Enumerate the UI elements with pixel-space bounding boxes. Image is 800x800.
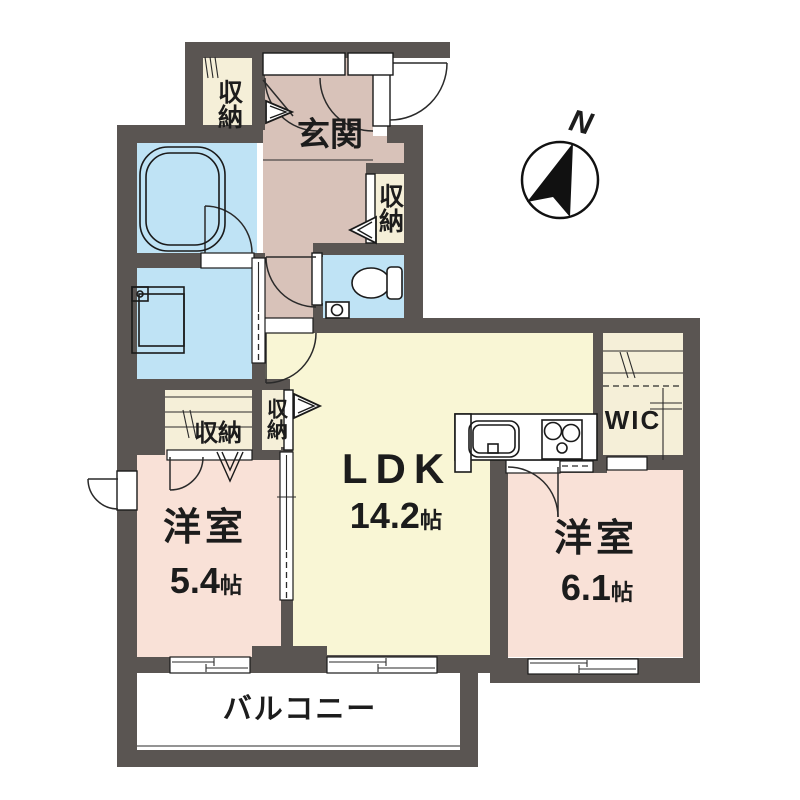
storage-bedroom-label: 収納 — [194, 422, 242, 446]
bedroom-right-window — [528, 659, 638, 674]
ldk-area-label: 14.2帖 — [350, 498, 442, 534]
bedroom-left-area-unit: 帖 — [220, 573, 242, 598]
bedroom-left-area-value: 5.4 — [170, 560, 220, 601]
toilet-door-frame — [312, 253, 322, 305]
bathroom-door-opening — [201, 253, 254, 268]
bedroom-left-floor — [137, 450, 283, 657]
ldk-label: LDK — [342, 448, 452, 490]
bedroom-right-door-opening — [506, 460, 560, 473]
bedroom-left-area-label: 5.4帖 — [170, 563, 242, 599]
bedroom-right-area-unit: 帖 — [611, 580, 633, 605]
genkan-label: 玄関 — [297, 118, 363, 151]
bathroom-floor — [137, 143, 257, 253]
wic-opening — [607, 457, 647, 470]
shoe-cabinet-2 — [348, 53, 393, 75]
compass-icon — [522, 142, 598, 218]
floorplan-drawing — [0, 0, 800, 800]
storage-ldk-label: 収納 — [266, 398, 287, 440]
floorplan: 玄関 収納 収納 収納 収納 LDK 14.2帖 洋室 5.4帖 洋室 6.1帖… — [0, 0, 800, 800]
storage-hall-label: 収納 — [377, 183, 402, 233]
bedroom-right-area-label: 6.1帖 — [561, 570, 633, 606]
storage-entry-label: 収納 — [216, 79, 241, 129]
ldk-area-unit: 帖 — [420, 508, 442, 533]
windows — [170, 657, 638, 674]
entrance-door — [390, 63, 447, 120]
washroom-sliding-door — [252, 258, 265, 363]
bedroom-right-label: 洋室 — [554, 520, 638, 558]
bedroom-right-area-value: 6.1 — [561, 567, 611, 608]
shoe-cabinet — [263, 53, 345, 75]
balcony-label: バルコニー — [223, 696, 377, 725]
bedroom-right-floor — [508, 470, 683, 657]
bedroom-left-ext-door-frame — [117, 471, 137, 510]
washroom-floor — [137, 268, 252, 379]
bedroom-left-label: 洋室 — [163, 509, 247, 547]
ldk-window — [327, 657, 437, 673]
storage-bedroom-opening — [167, 450, 252, 460]
ldk-area-value: 14.2 — [350, 495, 420, 536]
bedroom-left-ext-door — [88, 479, 118, 509]
hall-ldk-opening — [263, 318, 313, 333]
bedroom-left-window — [170, 657, 250, 673]
wic-label: WIC — [605, 407, 662, 433]
bedroom-left-sliding-door — [277, 452, 296, 600]
